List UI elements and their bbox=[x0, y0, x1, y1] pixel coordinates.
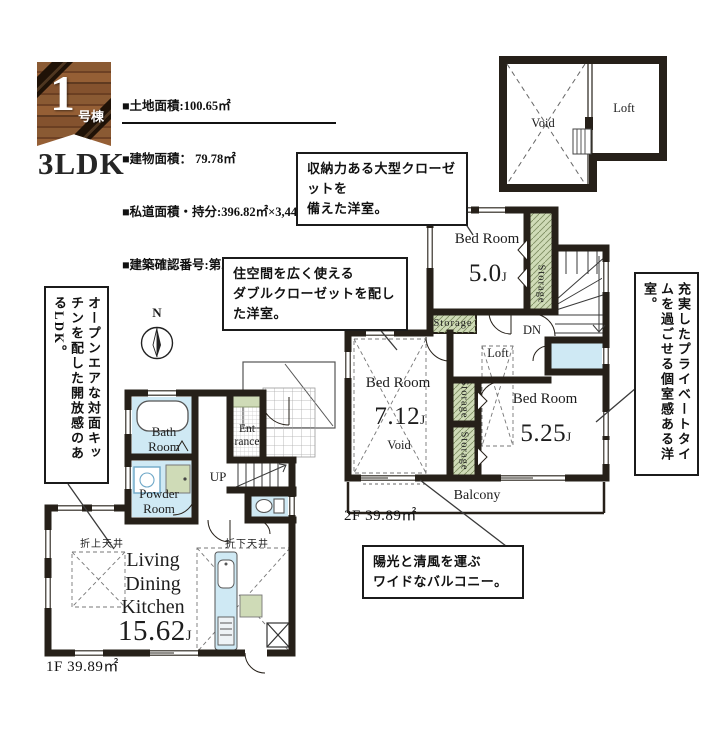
loft-void-label: Void bbox=[531, 116, 554, 130]
callout-double-closet: 住空間を広く使える ダブルクローゼットを配した洋室。 bbox=[222, 257, 408, 331]
lowered-ceiling-label: 折下天井 bbox=[225, 539, 269, 551]
leader-private-room bbox=[596, 388, 636, 422]
powder-room-label: Powder Room bbox=[139, 487, 179, 517]
storage-label: Storage bbox=[433, 318, 472, 330]
stairs-up-label: UP bbox=[210, 470, 227, 485]
callout-balcony: 陽光と清風を運ぶ ワイドなバルコニー。 bbox=[362, 545, 524, 599]
ldk-size: 15.62J bbox=[118, 615, 192, 648]
floor1-area-label: 1F 39.89㎡ bbox=[46, 655, 119, 676]
size-value: 15.62 bbox=[118, 615, 186, 647]
raised-ceiling-label: 折上天井 bbox=[80, 539, 124, 551]
entrance-label: Ent rance bbox=[235, 423, 260, 449]
size-unit: J bbox=[420, 412, 426, 427]
loft-loft-label: Loft bbox=[613, 101, 635, 115]
void-label: Void bbox=[387, 438, 410, 452]
bedroom1-name: Bed Room bbox=[452, 231, 522, 248]
callout-private-room: 充実したプライベートタイムを過ごせる個室感ある洋室。 bbox=[634, 272, 699, 476]
bedroom1-size: 5.0J bbox=[469, 260, 507, 289]
ldk-label: Living Dining Kitchen bbox=[121, 549, 184, 620]
balcony-label: Balcony bbox=[454, 488, 501, 504]
bedroom2-size: 7.12J bbox=[374, 403, 425, 432]
size-unit: J bbox=[566, 429, 572, 444]
bedroom2-name: Bed Room bbox=[363, 375, 433, 392]
storage-label: Storage bbox=[459, 379, 470, 418]
bedroom3-size: 5.25J bbox=[520, 420, 571, 449]
size-unit: J bbox=[186, 628, 192, 644]
size-value: 5.0 bbox=[469, 260, 502, 287]
size-value: 5.25 bbox=[520, 420, 566, 447]
closet-label: Storage bbox=[536, 264, 547, 303]
stairs-dn-label: DN bbox=[523, 323, 541, 337]
bedroom3-name: Bed Room bbox=[510, 391, 580, 408]
floorplan-flyer: 1 号棟 ■土地面積:100.65㎡ ■建物面積： 79.78㎡ ■私道面積・持… bbox=[0, 0, 716, 752]
compass-north-label: N bbox=[152, 306, 161, 321]
loft-area-label: Loft bbox=[487, 346, 509, 360]
callout-closet: 収納力ある大型クローゼットを 備えた洋室。 bbox=[296, 152, 468, 226]
floor2-area-label: 2F 39.89㎡ bbox=[344, 504, 417, 525]
size-value: 7.12 bbox=[374, 403, 420, 430]
storage-label: Storage bbox=[459, 431, 470, 470]
size-unit: J bbox=[502, 269, 508, 284]
bathroom-label: Bath Room bbox=[148, 425, 180, 455]
callout-open-kitchen: オープンエアな対面キッチンを配した開放感のあるLDK。 bbox=[44, 286, 109, 484]
